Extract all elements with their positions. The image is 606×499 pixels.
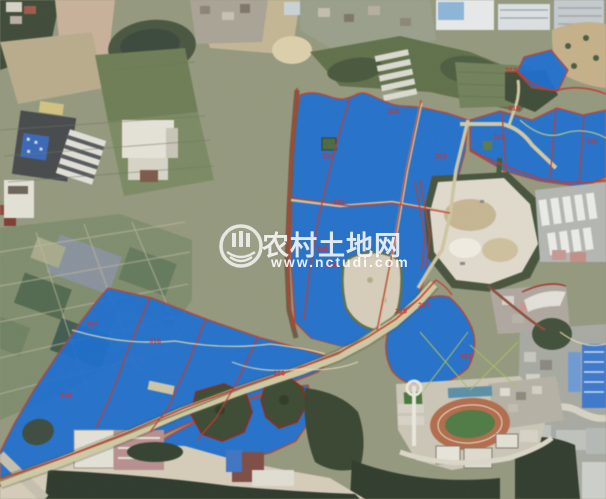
satellite-map-image bbox=[0, 0, 606, 499]
photo-grain bbox=[0, 0, 606, 499]
map-viewport[interactable]: 3363153163183193123113353173163183263083… bbox=[0, 0, 606, 499]
